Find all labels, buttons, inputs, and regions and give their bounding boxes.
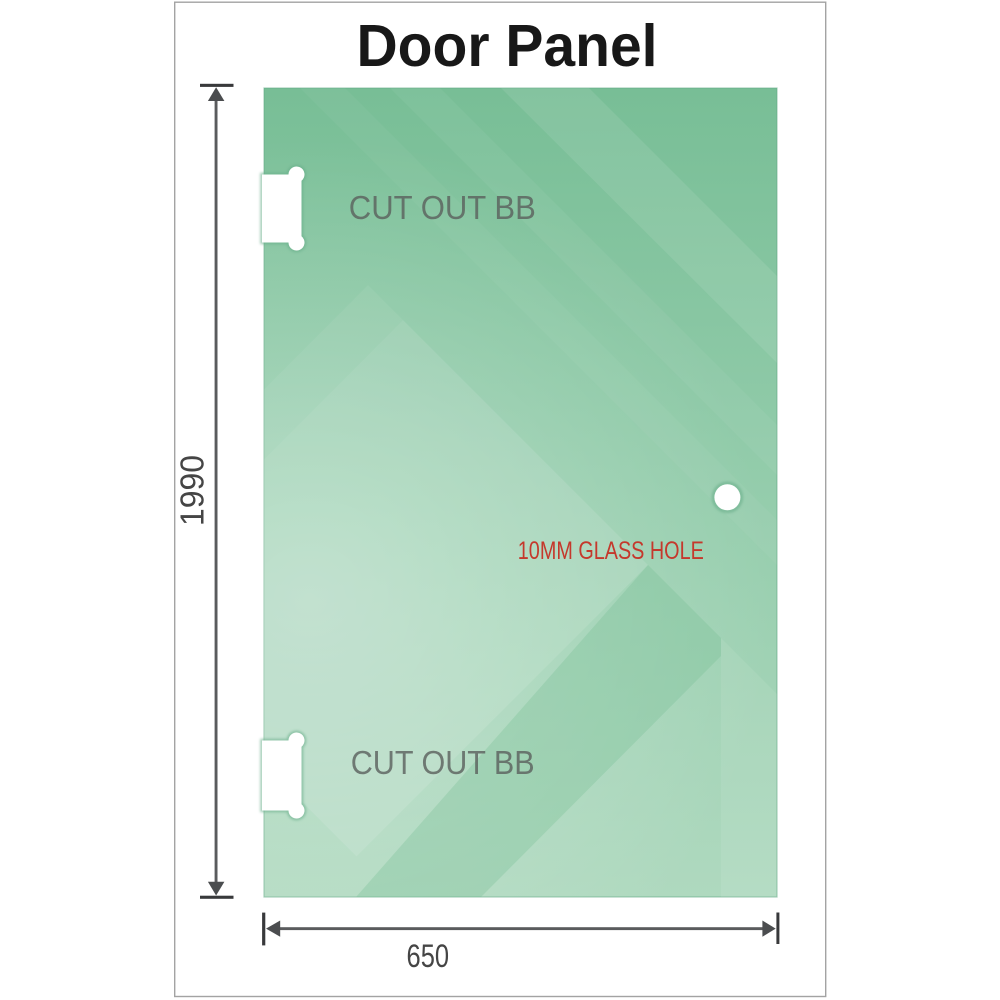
- svg-text:1990: 1990: [174, 455, 211, 526]
- svg-text:CUT OUT BB: CUT OUT BB: [349, 190, 536, 227]
- svg-text:650: 650: [407, 938, 450, 974]
- svg-text:CUT OUT BB: CUT OUT BB: [351, 745, 535, 782]
- svg-text:Door Panel: Door Panel: [357, 13, 658, 79]
- svg-text:10MM GLASS HOLE: 10MM GLASS HOLE: [518, 537, 704, 565]
